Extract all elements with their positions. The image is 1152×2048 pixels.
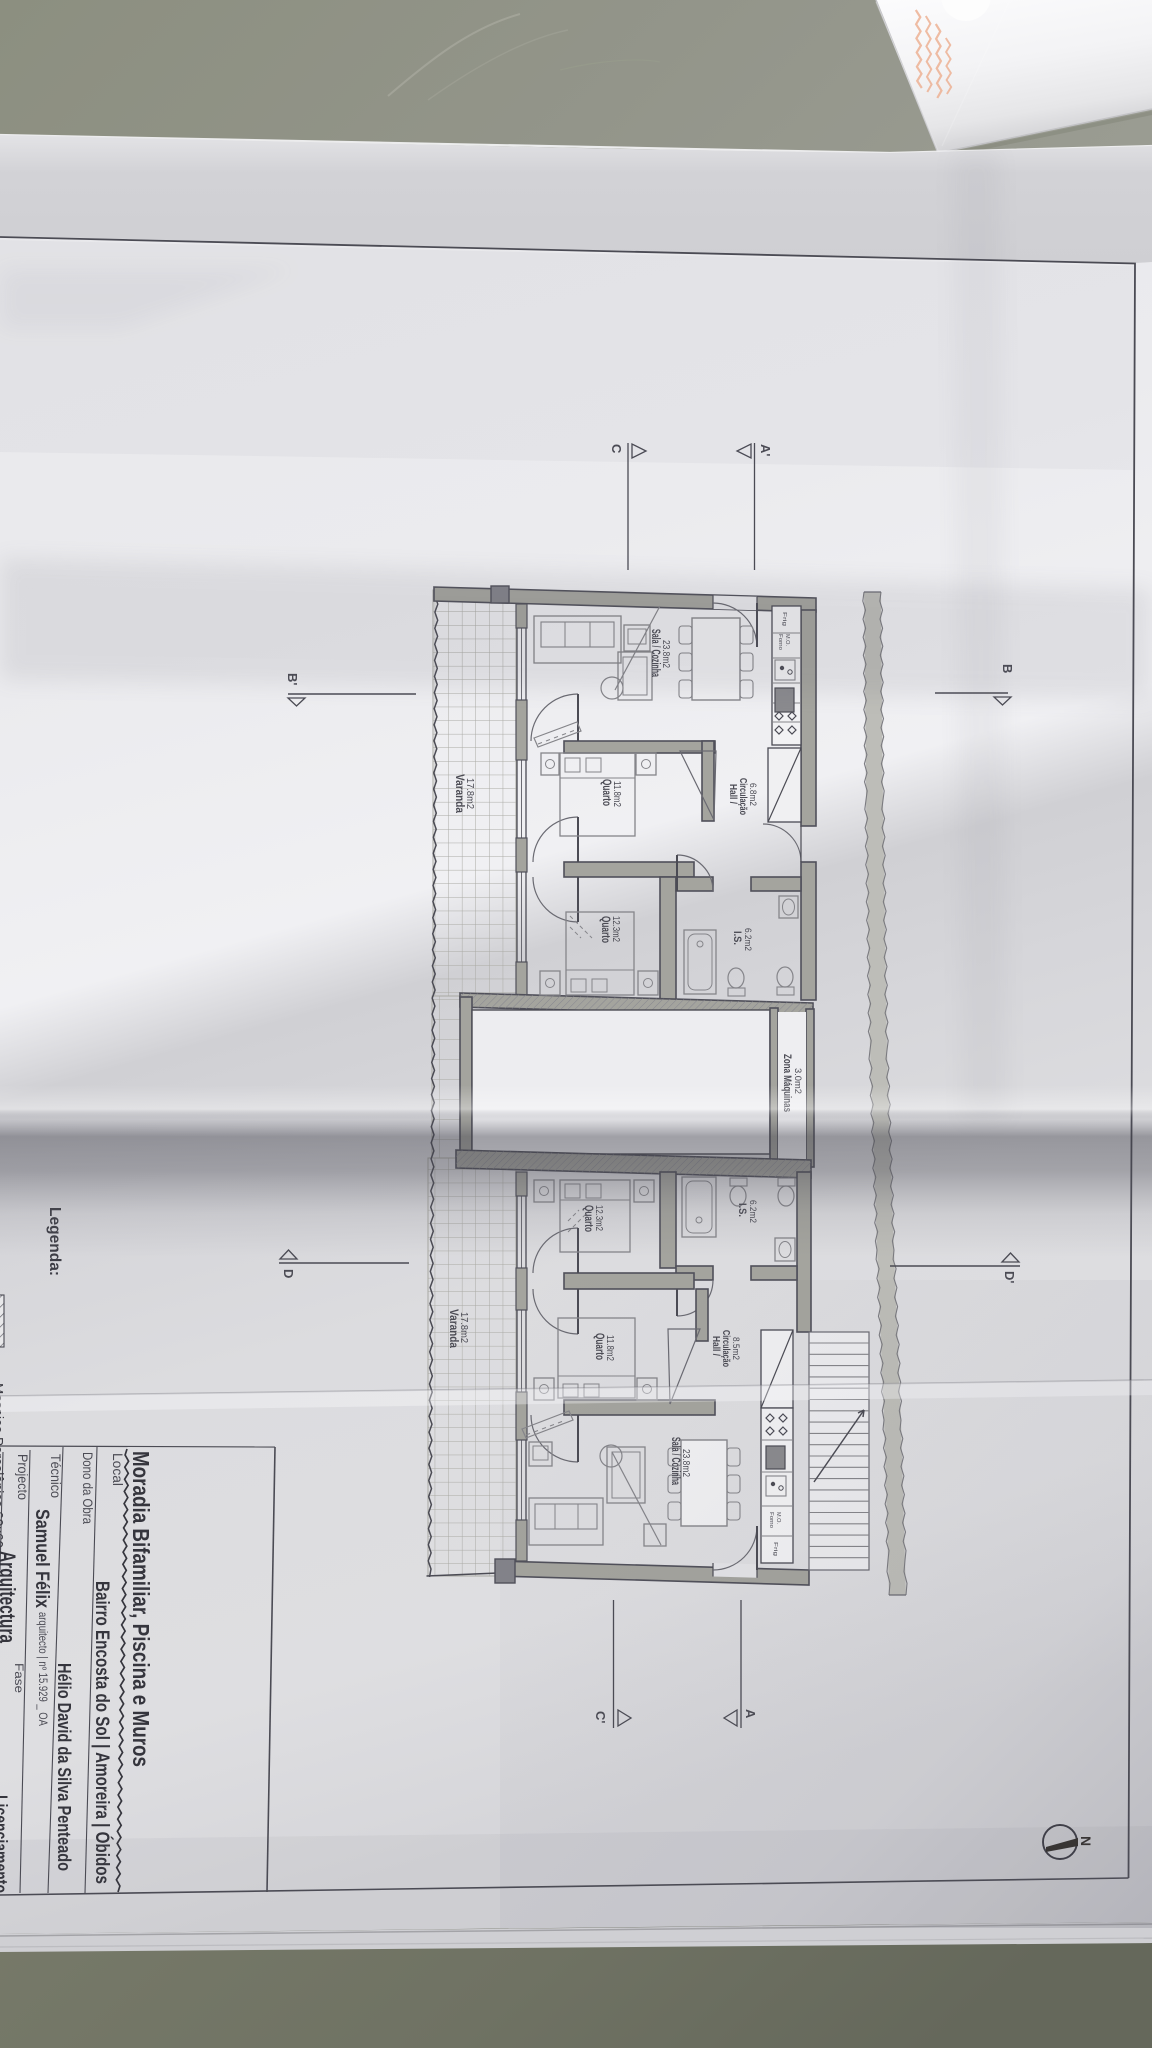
svg-text:Fase: Fase (12, 1663, 26, 1693)
svg-text:6.8m2: 6.8m2 (747, 783, 758, 806)
svg-text:17.8m2: 17.8m2 (458, 1312, 469, 1343)
svg-text:12.3m2: 12.3m2 (610, 916, 621, 942)
svg-text:Arquitectura: Arquitectura (0, 1551, 20, 1644)
svg-text:Projecto: Projecto (15, 1454, 30, 1500)
svg-text:Bairro Encosta do Sol | Amorei: Bairro Encosta do Sol | Amoreira | Óbido… (91, 1581, 113, 1884)
svg-text:Técnico: Técnico (48, 1454, 63, 1498)
svg-text:11.8m2: 11.8m2 (611, 781, 622, 807)
svg-text:Local: Local (110, 1453, 125, 1486)
svg-text:Samuel Félix: Samuel Félix (31, 1509, 52, 1608)
svg-text:6.2m2: 6.2m2 (742, 928, 753, 951)
svg-text:Moradia Bifamiliar, Piscina e: Moradia Bifamiliar, Piscina e Muros (128, 1451, 154, 1767)
svg-text:arquitecto | nº 15.929 _ OA: arquitecto | nº 15.929 _ OA (36, 1612, 48, 1726)
svg-text:D: D (281, 1269, 296, 1278)
svg-text:Dono da Obra: Dono da Obra (80, 1452, 95, 1524)
svg-text:17.8m2: 17.8m2 (464, 778, 475, 809)
svg-text:I.S.: I.S. (731, 931, 743, 945)
